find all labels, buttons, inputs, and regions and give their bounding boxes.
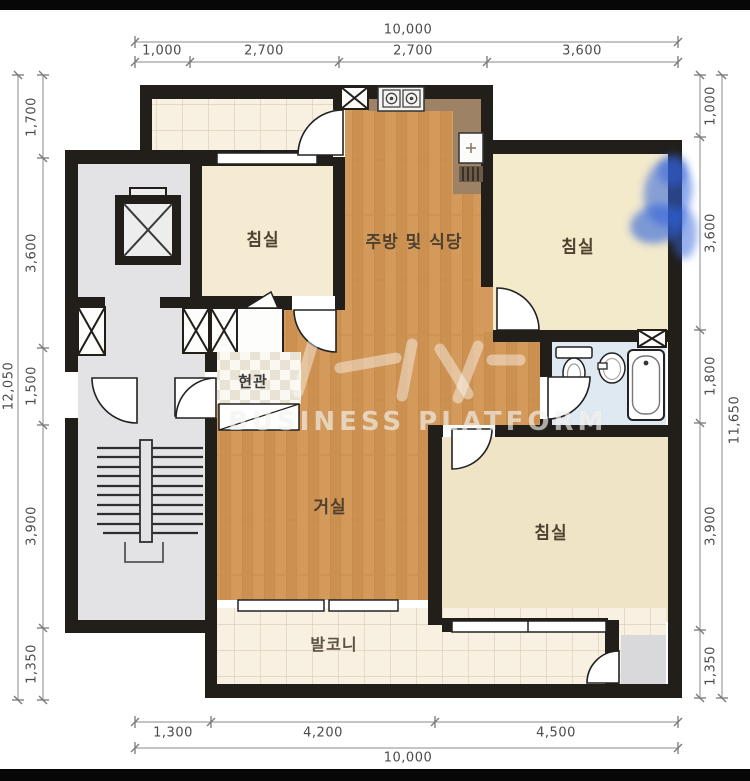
watermark-text: BUSINESS PLATFORM bbox=[228, 407, 548, 437]
dim-bottom-seg-2: 4,500 bbox=[536, 726, 576, 741]
room-label-bedroom-top-left: 침실 bbox=[246, 226, 279, 251]
bathtub bbox=[628, 350, 664, 420]
vent-grill bbox=[459, 166, 483, 182]
utility-corner bbox=[621, 635, 666, 685]
room-label-bedroom-top-right: 침실 bbox=[561, 233, 594, 258]
floorplan-drawing bbox=[0, 0, 750, 781]
room-label-kitchen: 주방 및 식당 bbox=[365, 228, 462, 253]
dim-left-seg-0: 1,700 bbox=[25, 97, 40, 137]
dim-right-seg-1: 3,600 bbox=[704, 213, 719, 253]
elevator bbox=[115, 188, 181, 265]
room-label-living: 거실 bbox=[313, 493, 346, 518]
dim-left-seg-2: 1,500 bbox=[25, 366, 40, 406]
dim-top-seg-3: 3,600 bbox=[562, 44, 602, 59]
dim-top-total: 10,000 bbox=[384, 23, 433, 38]
dim-right-seg-0: 1,000 bbox=[704, 86, 719, 126]
room-label-balcony: 발코니 bbox=[310, 631, 357, 655]
dim-right-seg-4: 1,350 bbox=[704, 646, 719, 686]
dim-top-seg-2: 2,700 bbox=[393, 44, 433, 59]
dim-left-seg-3: 3,900 bbox=[25, 506, 40, 546]
dim-top-seg-0: 1,000 bbox=[142, 44, 182, 59]
floorplan-screenshot: 10,000 1,000 2,700 2,700 3,600 12,050 1,… bbox=[0, 0, 750, 781]
dim-left-seg-4: 1,350 bbox=[25, 644, 40, 684]
dim-bottom-seg-1: 4,200 bbox=[303, 726, 343, 741]
sink bbox=[598, 353, 625, 383]
dim-bottom-total: 10,000 bbox=[384, 751, 433, 766]
dim-bottom-seg-0: 1,300 bbox=[153, 726, 193, 741]
dim-right-seg-2: 1,800 bbox=[704, 356, 719, 396]
refrigerator bbox=[459, 133, 483, 163]
dim-left-total: 12,050 bbox=[2, 362, 17, 411]
dim-right-seg-3: 3,900 bbox=[704, 506, 719, 546]
stove bbox=[378, 87, 424, 111]
dim-top-seg-1: 2,700 bbox=[244, 44, 284, 59]
dim-right-total: 11,650 bbox=[728, 396, 743, 445]
dim-left-seg-1: 3,600 bbox=[25, 233, 40, 273]
room-label-entrance: 현관 bbox=[238, 371, 268, 392]
room-label-bedroom-bottom-right: 침실 bbox=[534, 519, 567, 544]
